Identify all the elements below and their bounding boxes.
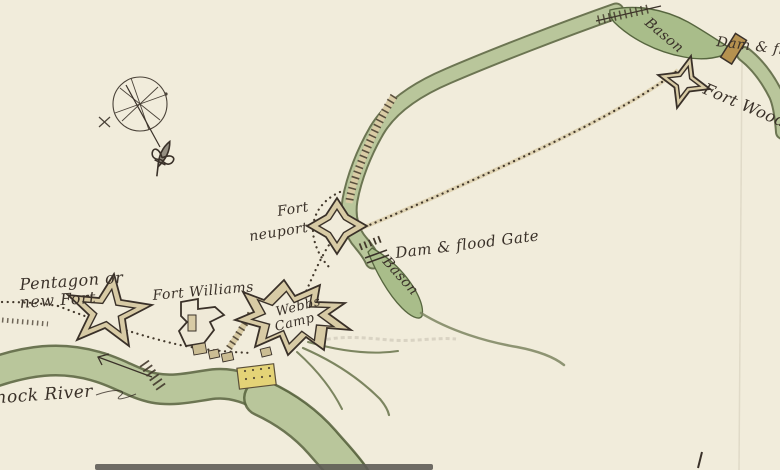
- historic-fort-map: Pentagon or new Fort Fort Williams Webbs…: [0, 0, 780, 470]
- fort-williams-keep: [188, 315, 196, 331]
- bottom-edge-shadow: [95, 464, 433, 470]
- storehouse: [192, 343, 207, 355]
- storehouse: [208, 349, 219, 359]
- paper-background: [0, 0, 780, 470]
- yellow-building: [237, 364, 276, 389]
- storehouse: [260, 347, 272, 357]
- storehouse: [221, 352, 233, 362]
- map-canvas: Pentagon or new Fort Fort Williams Webbs…: [0, 0, 780, 470]
- compass-east-dot: [164, 92, 167, 95]
